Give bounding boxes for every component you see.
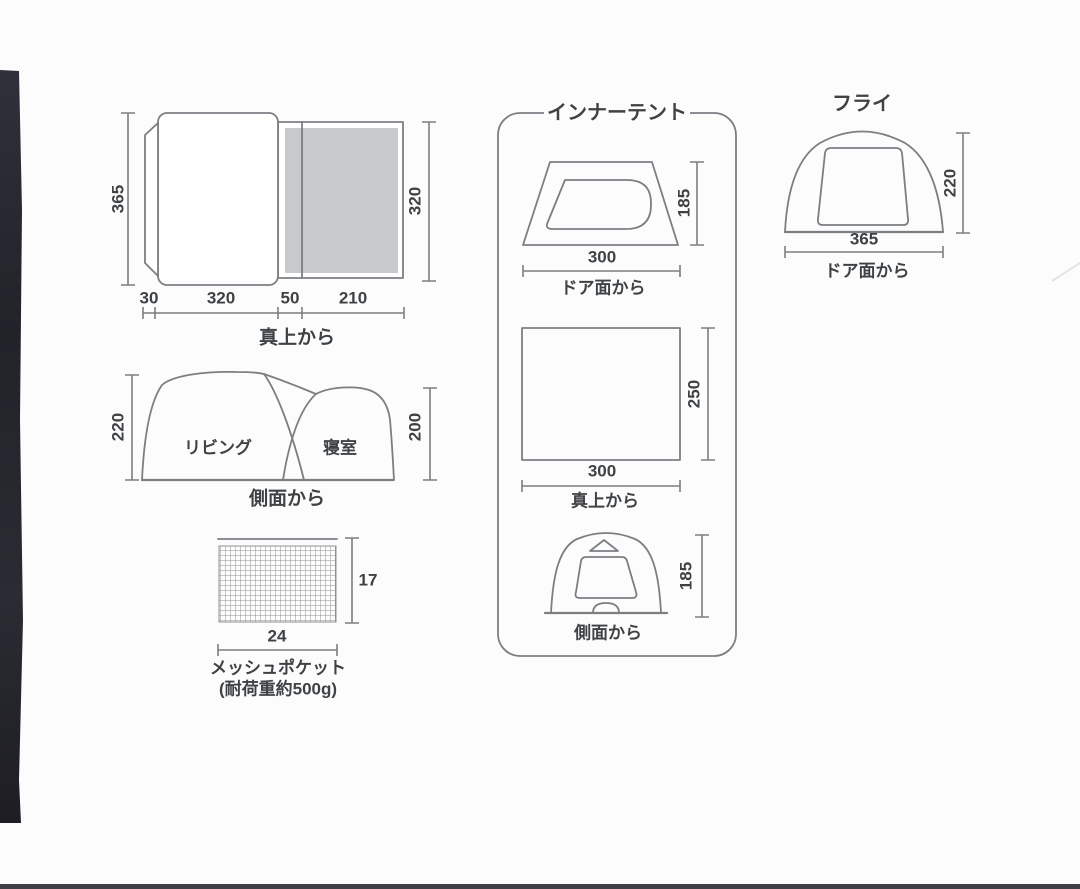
inner-tent-title: インナーテント	[547, 102, 687, 124]
fly-caption: ドア面から	[825, 262, 910, 281]
mesh-pocket-grid	[219, 546, 336, 622]
mesh-pocket-load-note: (耐荷重約500g)	[219, 679, 337, 699]
dim-label-24: 24	[268, 627, 287, 646]
inner-door-view-caption: ドア面から	[561, 279, 646, 298]
dim-label-320-bottom: 320	[207, 289, 235, 308]
dim-label-30: 30	[140, 289, 159, 308]
dim-label-365-fly: 365	[850, 230, 878, 249]
dim-label-210: 210	[339, 289, 367, 308]
dim-label-185-side: 185	[677, 562, 696, 590]
dim-label-220: 220	[109, 413, 128, 441]
overall-top-view: 365 320 30 320 50 210 真上から	[109, 113, 437, 349]
top-view-caption: 真上から	[259, 326, 335, 349]
side-view-caption: 側面から	[248, 488, 325, 510]
spec-drawing: 365 320 30 320 50 210 真上から 220 200 リビング …	[0, 0, 1080, 889]
photo-bottom-bar	[0, 884, 1080, 889]
inner-side-view-caption: 側面から	[573, 623, 642, 643]
photo-left-fabric-strip	[0, 70, 23, 823]
dim-label-185-door: 185	[675, 189, 694, 217]
mesh-pocket-caption: メッシュポケット	[210, 658, 346, 678]
dim-label-300-door: 300	[588, 248, 616, 267]
inner-top-view-caption: 真上から	[571, 491, 639, 511]
top-view-front-flap	[145, 123, 158, 276]
dim-label-17: 17	[359, 571, 378, 590]
dim-label-320-right: 320	[406, 187, 425, 215]
tent-spec-sheet: 365 320 30 320 50 210 真上から 220 200 リビング …	[0, 0, 1080, 889]
dim-label-200: 200	[406, 413, 425, 441]
living-room-label: リビング	[184, 438, 252, 458]
dim-label-220-fly: 220	[941, 169, 960, 197]
top-view-living-outline	[158, 113, 278, 285]
dim-label-300-top: 300	[588, 462, 616, 481]
fly-title: フライ	[832, 93, 892, 115]
dim-label-365: 365	[109, 185, 128, 213]
dim-label-50: 50	[281, 289, 300, 308]
dim-label-250: 250	[685, 380, 704, 408]
bedroom-label: 寝室	[323, 438, 357, 458]
